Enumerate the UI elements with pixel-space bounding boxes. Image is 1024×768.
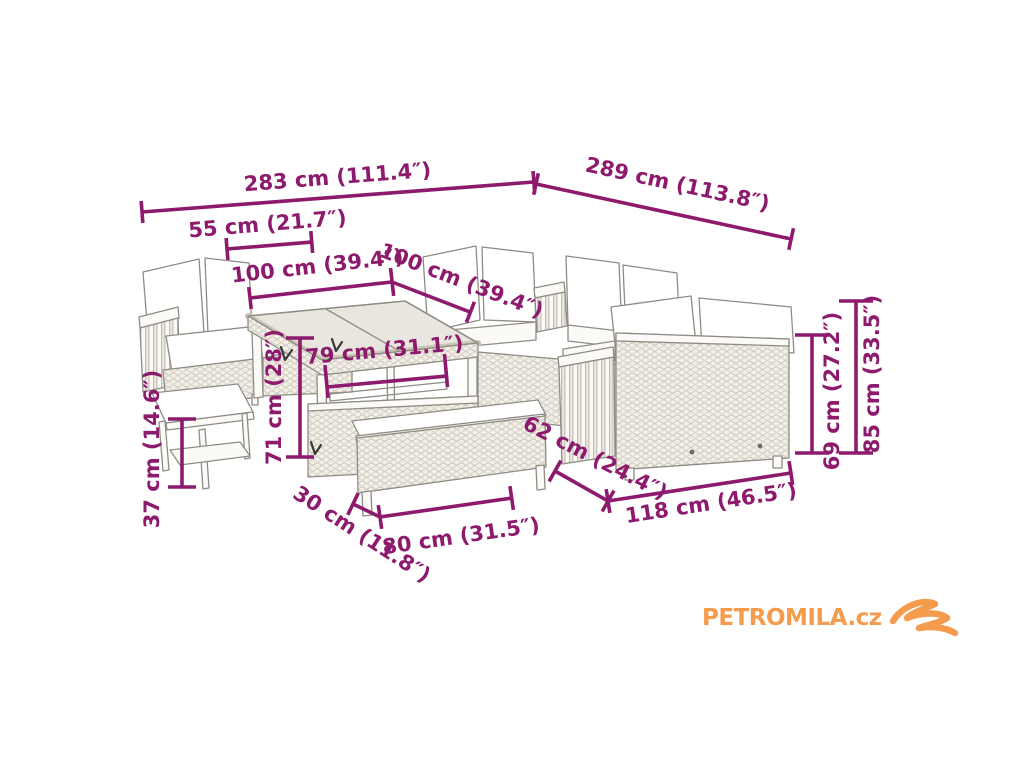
- bench: [352, 400, 546, 516]
- brand-logo: PETROMILA.cz: [702, 597, 959, 639]
- dim-label-table-height: 71 cm (28″): [262, 329, 286, 465]
- dim-label-stool-height: 37 cm (14.6″): [140, 370, 164, 529]
- diagram-svg: 283 cm (111.4″) 289 cm (113.8″) 55 cm (2…: [0, 0, 1024, 768]
- dim-label-total-height: 85 cm (33.5″): [860, 295, 884, 454]
- product-dimension-diagram: 283 cm (111.4″) 289 cm (113.8″) 55 cm (2…: [0, 0, 1024, 768]
- dim-label-total-depth: 289 cm (113.8″): [583, 153, 772, 216]
- dim-label-backrest-height: 69 cm (27.2″): [820, 312, 844, 471]
- dim-label-bench-width: 80 cm (31.5″): [381, 513, 541, 559]
- dim-label-left-module-width: 100 cm (39.4″): [230, 244, 405, 287]
- dim-label-stool-width: 55 cm (21.7″): [187, 206, 347, 243]
- logo-swoosh-icon: [889, 597, 959, 639]
- side-table-stool: [152, 384, 254, 489]
- brand-logo-text: PETROMILA.cz: [702, 605, 882, 631]
